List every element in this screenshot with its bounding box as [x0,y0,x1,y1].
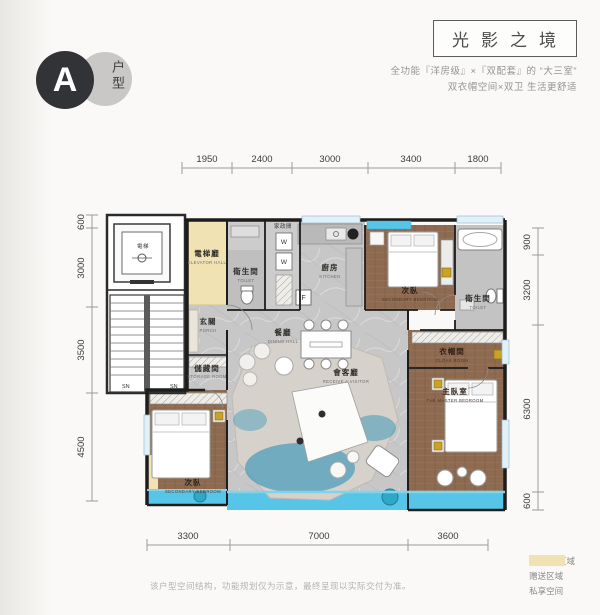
dining-chair [338,320,348,330]
gold-accent-5 [215,412,223,420]
dim-top-2: 3000 [319,154,340,165]
label-storage-en: STORAGE ROOM [187,374,227,379]
foyer-cabinet [189,310,198,352]
decor-dot-2 [297,438,304,445]
stair-mark-left: SN [122,384,130,390]
stairs: SN SN [110,295,184,392]
label-dining-zh: 餐廳 [274,327,292,337]
master-chair [437,470,453,486]
kitchen-sink [326,228,346,240]
window-bath2 [457,216,503,223]
bed3-wardrobe [150,393,227,404]
dim-top-0: 1950 [196,154,217,165]
dim-right-2: 6300 [522,398,533,419]
legend-swatch-rect [529,555,565,566]
dim-top-4: 1800 [467,154,488,165]
master-chair-2 [470,470,486,486]
window-cloak [502,340,509,364]
dim-left-2: 3500 [76,339,87,360]
kitchen-tall-cabinet [346,248,362,306]
stool [330,462,346,478]
gold-accent-4 [434,442,442,450]
elevator-door [130,280,154,284]
bed2-pillow-2 [414,235,434,246]
label-bedroom2-en: SECONDARY BEDROOM [382,297,438,302]
label-cloak-en: CLOAK ROOM [436,358,468,363]
label-elevator-hall-en: ELEVATOR HALL [188,260,227,265]
window-master [502,420,509,468]
pouf [239,354,255,370]
bed3-pillow [155,413,179,425]
stool-2 [347,451,359,463]
toilet2-tank [497,289,503,303]
stair-rail [144,295,150,392]
floor-plan: F W W [0,0,600,615]
master-balcony [408,493,505,510]
label-master-en: THE MASTER BEDROOM [427,398,484,403]
label-dining-en: DINING HALL [268,339,299,344]
laundry-shelf [276,275,292,305]
washer-label: W [281,239,288,246]
dim-top-1: 2400 [251,154,272,165]
legend-label-gift: 赠送区域 [529,570,563,582]
gold-accent-3 [434,380,442,388]
label-living-zh: 會客廳 [333,367,359,377]
label-storage-zh: 儲藏間 [194,363,220,373]
dim-left-0: 600 [76,214,87,230]
label-toilet2-en: TOILET [470,305,487,310]
disclaimer-text: 该户型空间结构，功能规划仅为示意，最终呈现以实际交付为准。 [150,580,450,592]
gold-accent [442,268,451,277]
dim-bottom-0: 3300 [177,531,198,542]
legend-label-private: 私享空间 [529,585,563,597]
kettle-icon [348,229,359,240]
window-bed2-gift [367,221,411,229]
dim-bottom-2: 3600 [437,531,458,542]
dim-bottom-1: 7000 [308,531,329,542]
dining-chair [321,320,331,330]
label-master-zh: 主臥室 [442,386,468,396]
label-elevator: 電梯 [137,242,149,250]
label-kitchen-en: KITCHEN [319,274,340,279]
decor-dot [319,411,326,418]
label-foyer-en: PORCH [199,328,216,333]
dim-left-1: 3000 [76,257,87,278]
label-laundry: 家政間 [274,222,292,230]
dim-right-1: 3200 [522,279,533,300]
window-kitchen [302,216,360,223]
dim-top-3: 3400 [400,154,421,165]
bed2-pillow [391,235,411,246]
legend: 1/2赠送区域 赠送区域 私享空间 [529,555,575,597]
bath1-vanity [231,226,259,237]
legend-row-private: 私享空间 [529,585,575,597]
gold-accent-2 [494,350,503,359]
dim-left-3: 4500 [76,436,87,457]
label-kitchen-zh: 廚房 [322,262,339,272]
toilet-tank [241,286,253,291]
window-bed3 [144,415,150,455]
dining-chair [321,359,331,369]
elevator-car [122,232,162,274]
pouf-3 [243,372,257,386]
legend-swatch-private [529,555,565,566]
rug-water-accent-3 [233,409,267,431]
dim-right-0: 900 [522,234,533,250]
label-living-en: RECEIVE A VISITOR [323,379,370,384]
label-toilet1-zh: 衛生間 [232,266,259,276]
stove-label: F [301,295,305,302]
label-elevator-hall-zh: 電梯廳 [194,248,220,258]
bed2-nightstand [370,232,384,245]
label-bedroom3-en: SECONDARY BEDROOM [165,489,221,494]
cloak-wardrobe [412,332,503,343]
label-foyer-zh: 玄關 [200,316,217,326]
bed3-pillow-2 [182,413,206,425]
dining-chair [304,359,314,369]
label-bedroom3-zh: 次臥 [185,477,202,487]
label-cloak-zh: 衣帽間 [439,346,465,356]
side-table [275,357,293,375]
dryer-label: W [281,259,288,266]
dim-right-3: 600 [522,493,533,509]
master-tea-table [457,467,467,477]
label-toilet1-en: TOILET [238,278,255,283]
dining-table [301,331,351,358]
legend-row-gift: 赠送区域 [529,570,575,582]
dining-set [301,320,351,369]
laundry-fixtures: W W [276,233,292,305]
label-bedroom2-zh: 次臥 [402,285,419,295]
master-pillow-2 [472,383,493,395]
bed2-wardrobe [441,240,453,285]
pouf-2 [254,343,270,359]
dining-chair [304,320,314,330]
label-toilet2-zh: 衛生間 [464,293,491,303]
